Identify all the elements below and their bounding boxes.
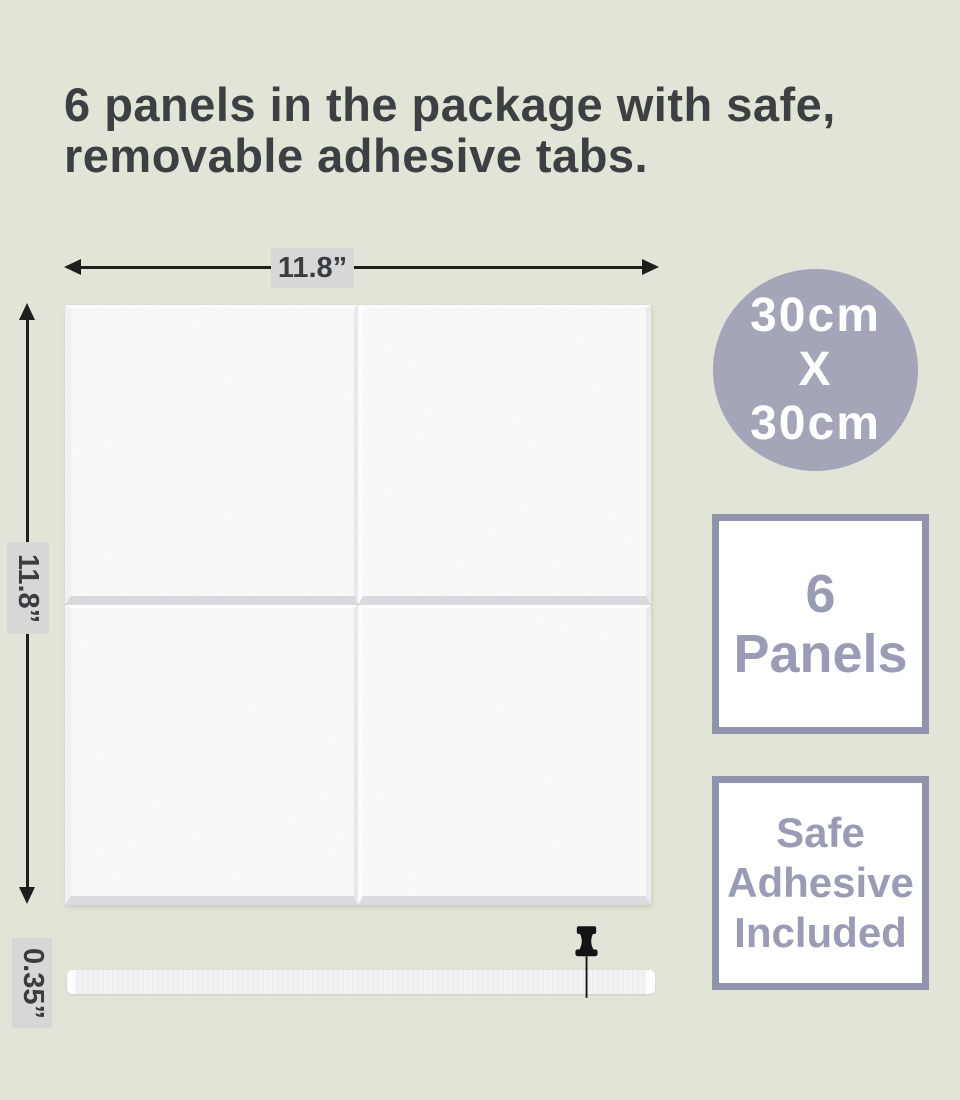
height-dimension-value: 11.8” [12,553,45,622]
size-badge: 30cm X 30cm [713,269,918,471]
size-badge-x: X [798,343,832,397]
arrow-up-icon [19,303,35,320]
adhesive-badge-line3: Included [734,908,907,958]
arrow-right-icon [642,259,659,275]
size-badge-height: 30cm [750,397,881,451]
product-infographic: 6 panels in the package with safe, remov… [0,0,960,1100]
panel-grid-photo [65,305,651,905]
headline-line2: removable adhesive tabs. [64,130,924,181]
arrow-left-icon [64,259,81,275]
panel-count-badge: 6 Panels [712,514,929,734]
acoustic-panel [65,605,358,905]
thickness-dimension-value: 0.35” [16,948,49,1019]
headline-line1: 6 panels in the package with safe, [64,79,924,130]
acoustic-panel [358,605,651,905]
size-badge-width: 30cm [750,289,881,343]
pushpin-icon [572,926,601,998]
panel-count-number: 6 [805,564,835,624]
width-dimension-label: 11.8” [271,248,354,288]
acoustic-panel [65,305,358,605]
headline: 6 panels in the package with safe, remov… [64,79,924,181]
panel-edge-view [67,970,655,994]
panel-count-word: Panels [733,624,907,684]
adhesive-badge-line1: Safe [776,808,865,858]
adhesive-badge: Safe Adhesive Included [712,776,929,990]
arrow-down-icon [19,887,35,904]
thickness-dimension-label: 0.35” [12,938,52,1028]
width-dimension-line [79,266,644,269]
acoustic-panel [358,305,651,605]
adhesive-badge-line2: Adhesive [727,858,914,908]
width-dimension-value: 11.8” [278,252,347,285]
height-dimension-label: 11.8” [7,542,49,634]
